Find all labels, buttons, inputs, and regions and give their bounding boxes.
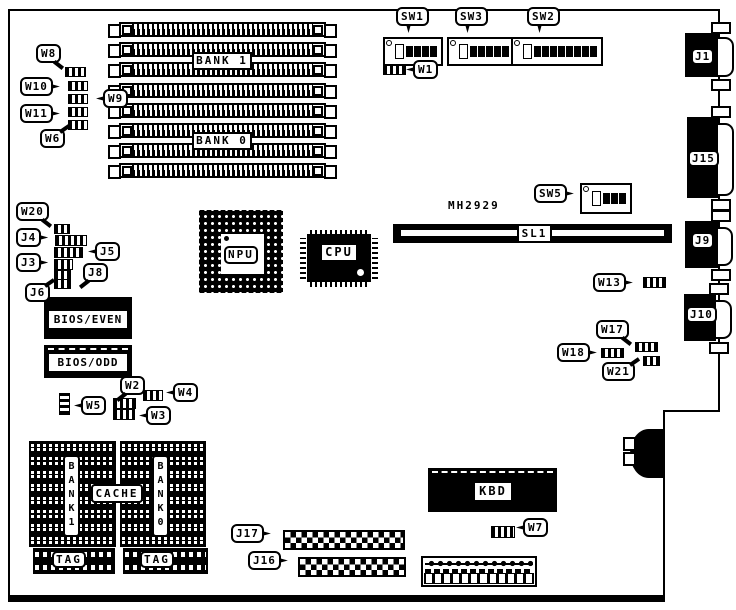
w6-callout: W6 <box>40 129 65 148</box>
sw3-dip-switch <box>447 37 515 66</box>
dip-switch-position <box>470 46 477 57</box>
cache-bank1-label: BANK1 <box>63 455 80 537</box>
dip-switch-position <box>590 46 597 57</box>
w10-jumper <box>68 81 88 91</box>
bios-odd-label: BIOS/ODD <box>48 353 128 372</box>
simm-tab-right <box>324 44 337 58</box>
w1-callout: W1 <box>413 60 438 79</box>
dip-switch-position <box>459 44 468 59</box>
dip-switch-position <box>395 44 404 59</box>
sl1-label: SL1 <box>517 224 552 243</box>
simm-tab-right <box>324 105 337 119</box>
w2-callout: W2 <box>120 376 145 395</box>
simm-slot-row <box>108 103 337 120</box>
w3-jumper <box>113 409 135 420</box>
j10-label: J10 <box>686 306 717 323</box>
w17-jumper <box>635 342 658 352</box>
w8-callout: W8 <box>36 44 61 63</box>
board-edge-step <box>663 410 720 412</box>
w20-jumper <box>54 224 70 234</box>
simm-slot-row <box>108 22 337 39</box>
simm-socket-body <box>119 103 326 118</box>
sw1-callout: SW1 <box>396 7 429 26</box>
terminal-pin <box>499 574 505 583</box>
dip-switch-position <box>422 46 429 57</box>
dip-switch-position <box>430 46 437 57</box>
j17-callout: J17 <box>231 524 264 543</box>
din-tab-bottom <box>623 452 636 466</box>
npu-pin1-dot <box>224 236 229 241</box>
dip-switch-position <box>414 46 421 57</box>
w13-callout: W13 <box>593 273 626 292</box>
dip-switch-position <box>566 46 573 57</box>
j6-callout: J6 <box>25 283 50 302</box>
j3-callout: J3 <box>16 253 41 272</box>
j4-header <box>55 235 87 246</box>
w20-callout: W20 <box>16 202 49 221</box>
cpu-label: CPU <box>321 244 357 261</box>
dip-switch-position <box>502 46 509 57</box>
w9-jumper <box>68 94 88 104</box>
dip-switch-position <box>542 46 549 57</box>
dip-switch-position <box>582 46 589 57</box>
cache-chip <box>120 441 206 454</box>
w4-callout: W4 <box>173 383 198 402</box>
board-edge-top <box>8 9 720 11</box>
kbd-chip: KBD <box>428 468 557 512</box>
motherboard-diagram: BANK 1 BANK 0 W8 W10 W9 W11 W6 SW1 SW3 S… <box>0 0 736 610</box>
cpu-chip: CPU <box>300 230 378 287</box>
terminal-pin <box>517 574 523 583</box>
terminal-pin <box>526 574 532 583</box>
w5-callout: W5 <box>81 396 106 415</box>
dip-switch-position <box>406 46 413 57</box>
bank1-label: BANK 1 <box>192 52 252 70</box>
dip-switch-position <box>534 46 541 57</box>
simm-tab-right <box>324 24 337 38</box>
terminal-pin <box>471 574 477 583</box>
board-edge-bottom <box>8 595 665 602</box>
tag-left-label: TAG <box>52 551 86 568</box>
simm-tab-right <box>324 125 337 139</box>
j9-label: J9 <box>691 232 714 249</box>
sw5-callout: SW5 <box>534 184 567 203</box>
j4-callout: J4 <box>16 228 41 247</box>
cache-label: CACHE <box>91 484 143 503</box>
simm-slots <box>108 22 337 185</box>
simm-tab-right <box>324 85 337 99</box>
terminal-pin <box>508 574 514 583</box>
j17-header <box>283 530 405 550</box>
bios-odd-chip: BIOS/ODD <box>44 345 132 378</box>
simm-socket-body <box>119 163 326 178</box>
terminal-block <box>421 556 537 587</box>
j16-header <box>298 557 406 577</box>
board-edge-left <box>8 9 10 601</box>
cache-chip <box>29 441 116 454</box>
j16-callout: J16 <box>248 551 281 570</box>
dip-switch-position <box>486 46 493 57</box>
dip-switch-position <box>574 46 581 57</box>
w8-jumper <box>65 67 86 77</box>
j9-screw-tab-bottom <box>711 269 731 281</box>
simm-slot-row <box>108 163 337 180</box>
bios-even-chip: BIOS/EVEN <box>44 297 132 339</box>
w5-jumper <box>59 393 70 415</box>
bios-even-label: BIOS/EVEN <box>48 310 128 329</box>
dip-switch-position <box>550 46 557 57</box>
terminal-pin <box>462 574 468 583</box>
sw3-callout: SW3 <box>455 7 488 26</box>
terminal-pin <box>435 574 441 583</box>
simm-tab-right <box>324 165 337 179</box>
w3-callout: W3 <box>146 406 171 425</box>
j1-screw-tab-bottom <box>711 79 731 91</box>
w17-callout: W17 <box>596 320 629 339</box>
npu-socket: NPU <box>199 210 283 293</box>
simm-socket-body <box>119 83 326 98</box>
dip-switch-position <box>558 46 565 57</box>
w10-callout: W10 <box>20 77 53 96</box>
bank0-label: BANK 0 <box>192 132 252 150</box>
sw2-callout: SW2 <box>527 7 560 26</box>
j5-header <box>54 247 83 258</box>
dip-switch-position <box>523 44 532 59</box>
w18-callout: W18 <box>557 343 590 362</box>
cpu-body: CPU <box>307 234 371 282</box>
w9-callout: W9 <box>103 89 128 108</box>
w13-jumper <box>643 277 666 288</box>
cpu-leads-right <box>372 238 378 279</box>
cpu-leads-left <box>300 238 306 279</box>
j1-label: J1 <box>691 48 714 65</box>
kbd-label: KBD <box>474 482 512 501</box>
terminal-pin <box>444 574 450 583</box>
tag-right-label: TAG <box>140 551 174 568</box>
simm-socket-body <box>119 22 326 37</box>
w6-jumper <box>68 120 88 130</box>
part-number-text: MH2929 <box>448 199 500 212</box>
terminal-dots-row <box>425 559 533 568</box>
terminal-strip <box>424 573 534 584</box>
dip-switch-position <box>494 46 501 57</box>
terminal-pin <box>490 574 496 583</box>
din-tab-top <box>623 437 636 451</box>
dip-switch-position <box>611 193 618 204</box>
j3-header <box>54 259 73 270</box>
npu-socket-center: NPU <box>221 234 264 274</box>
w21-jumper <box>643 356 660 366</box>
j5-callout: J5 <box>95 242 120 261</box>
npu-label: NPU <box>224 246 258 264</box>
w7-callout: W7 <box>523 518 548 537</box>
w11-jumper <box>68 107 88 117</box>
dip-switch-position <box>478 46 485 57</box>
terminal-pin <box>480 574 486 583</box>
w18-jumper <box>601 348 624 358</box>
w4-jumper <box>143 390 163 401</box>
cpu-pin1-dot <box>357 269 364 276</box>
w7-jumper <box>491 526 515 538</box>
simm-tab-right <box>324 64 337 78</box>
terminal-pin <box>426 574 432 583</box>
sw2-dip-switch <box>511 37 603 66</box>
dip-switch-position <box>592 191 601 206</box>
cache-bank0-label: BANK0 <box>152 455 169 537</box>
w21-callout: W21 <box>602 362 635 381</box>
terminal-pin <box>453 574 459 583</box>
j8-callout: J8 <box>83 263 108 282</box>
simm-tab-right <box>324 145 337 159</box>
sw5-dip-switch <box>580 183 632 214</box>
simm-slot-row <box>108 83 337 100</box>
j10-screw-tab-bottom <box>709 342 729 354</box>
j15-label: J15 <box>688 150 719 167</box>
w11-callout: W11 <box>20 104 53 123</box>
dip-switch-position <box>603 193 610 204</box>
j6-header <box>54 279 71 289</box>
dip-switch-position <box>619 193 626 204</box>
